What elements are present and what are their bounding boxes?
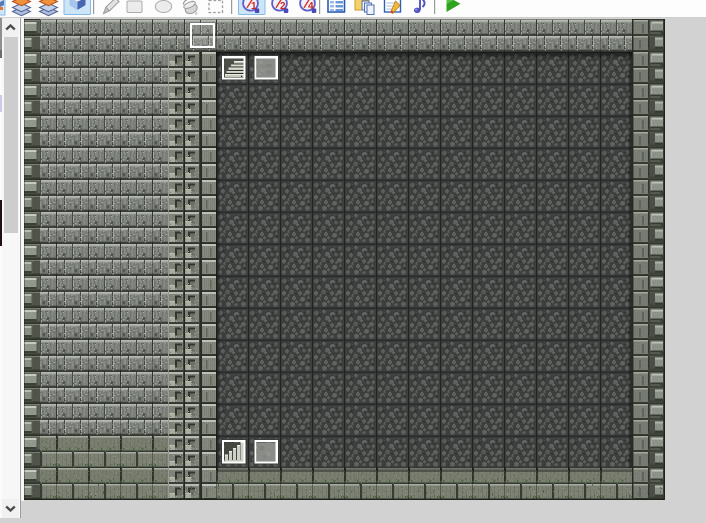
svg-text:4: 4 — [308, 1, 314, 12]
svg-text:1: 1 — [251, 1, 257, 12]
svg-text:2: 2 — [280, 1, 286, 12]
